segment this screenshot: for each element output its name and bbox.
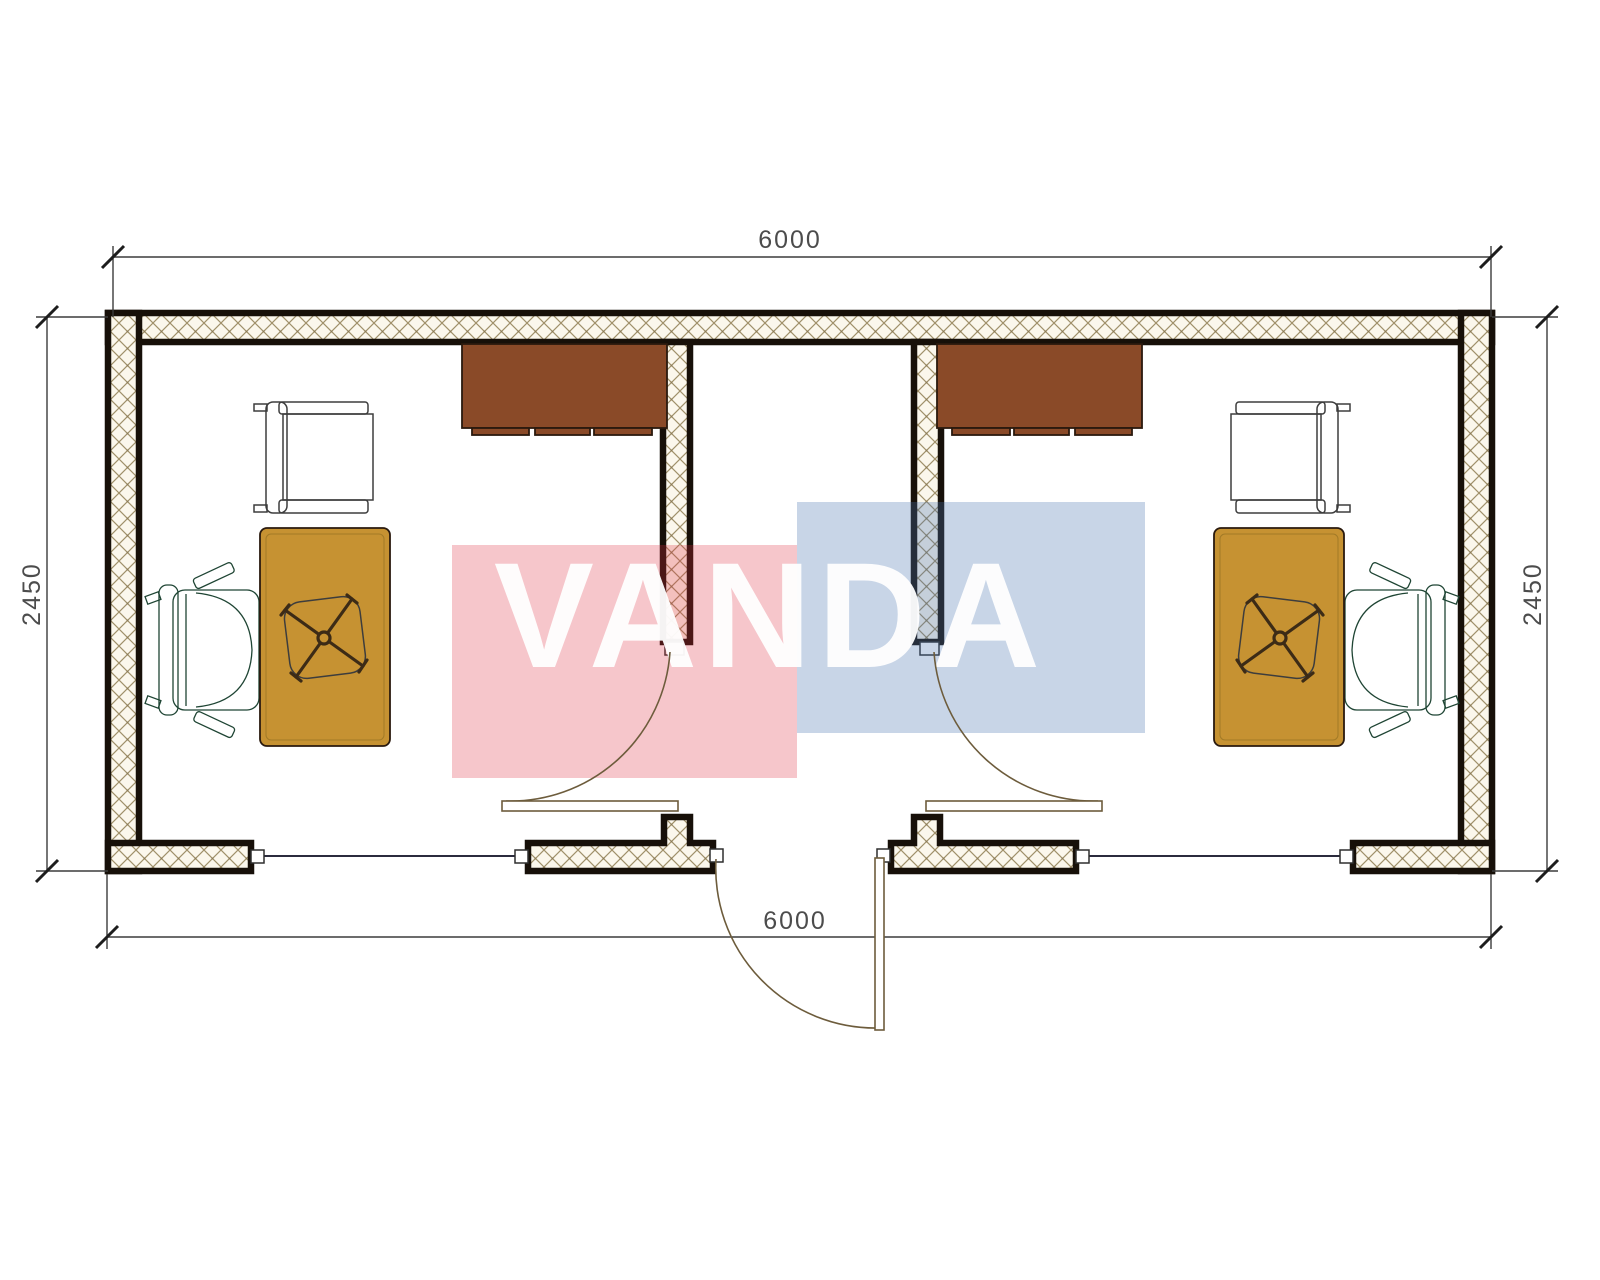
cabinet bbox=[462, 344, 667, 428]
dimension-right: 2450 bbox=[1492, 306, 1558, 882]
left-exterior-wall bbox=[108, 313, 139, 871]
dimension-top: 6000 bbox=[102, 226, 1502, 317]
right-exterior-wall bbox=[1461, 313, 1492, 871]
watermark: VANDA bbox=[452, 502, 1145, 778]
window-jamb bbox=[515, 850, 528, 863]
dimension-left: 2450 bbox=[18, 306, 108, 882]
task-chair-armrest bbox=[192, 562, 235, 590]
guest-chair-back bbox=[266, 402, 287, 513]
bottom-wall-left-corner bbox=[108, 843, 251, 871]
guest-chair-leg bbox=[254, 404, 267, 411]
guest-chair-armrest bbox=[279, 500, 368, 513]
guest-chair-armrest bbox=[279, 402, 368, 414]
bottom-wall-right-corner bbox=[1353, 843, 1492, 871]
window-jamb bbox=[1076, 850, 1089, 863]
bottom-wall-right-segment bbox=[891, 817, 1076, 871]
floor-plan-canvas: 6000 6000 2450 2450 VANDA bbox=[0, 0, 1600, 1280]
door-leaf bbox=[875, 858, 884, 1030]
task-chair-back bbox=[159, 585, 178, 715]
cabinet-foot bbox=[472, 428, 529, 435]
brand-logo-text: VANDA bbox=[494, 531, 1046, 699]
dimension-label-left: 2450 bbox=[18, 562, 46, 626]
cabinet-foot bbox=[594, 428, 652, 435]
door-swing-arc bbox=[716, 859, 878, 1028]
cabinet-foot bbox=[535, 428, 590, 435]
dimension-bottom: 6000 bbox=[96, 874, 1502, 949]
dimension-label-top: 6000 bbox=[758, 226, 822, 254]
task-chair-contour bbox=[196, 593, 252, 707]
guest-chair-leg bbox=[254, 505, 267, 512]
window-jamb bbox=[251, 850, 264, 863]
top-exterior-wall bbox=[108, 313, 1492, 342]
entrance-door bbox=[716, 858, 884, 1030]
dimension-label-bottom: 6000 bbox=[763, 907, 827, 935]
task-chair bbox=[145, 562, 259, 739]
task-chair-armrest bbox=[193, 711, 236, 739]
dimension-label-right: 2450 bbox=[1519, 562, 1547, 626]
floor-plan-page: 6000 6000 2450 2450 VANDA bbox=[0, 0, 1600, 1280]
window-jamb bbox=[1340, 850, 1353, 863]
door-leaf bbox=[502, 801, 678, 811]
guest-chair-seat bbox=[283, 414, 373, 500]
bottom-wall-left-segment bbox=[528, 817, 713, 871]
guest-chair bbox=[254, 402, 373, 513]
